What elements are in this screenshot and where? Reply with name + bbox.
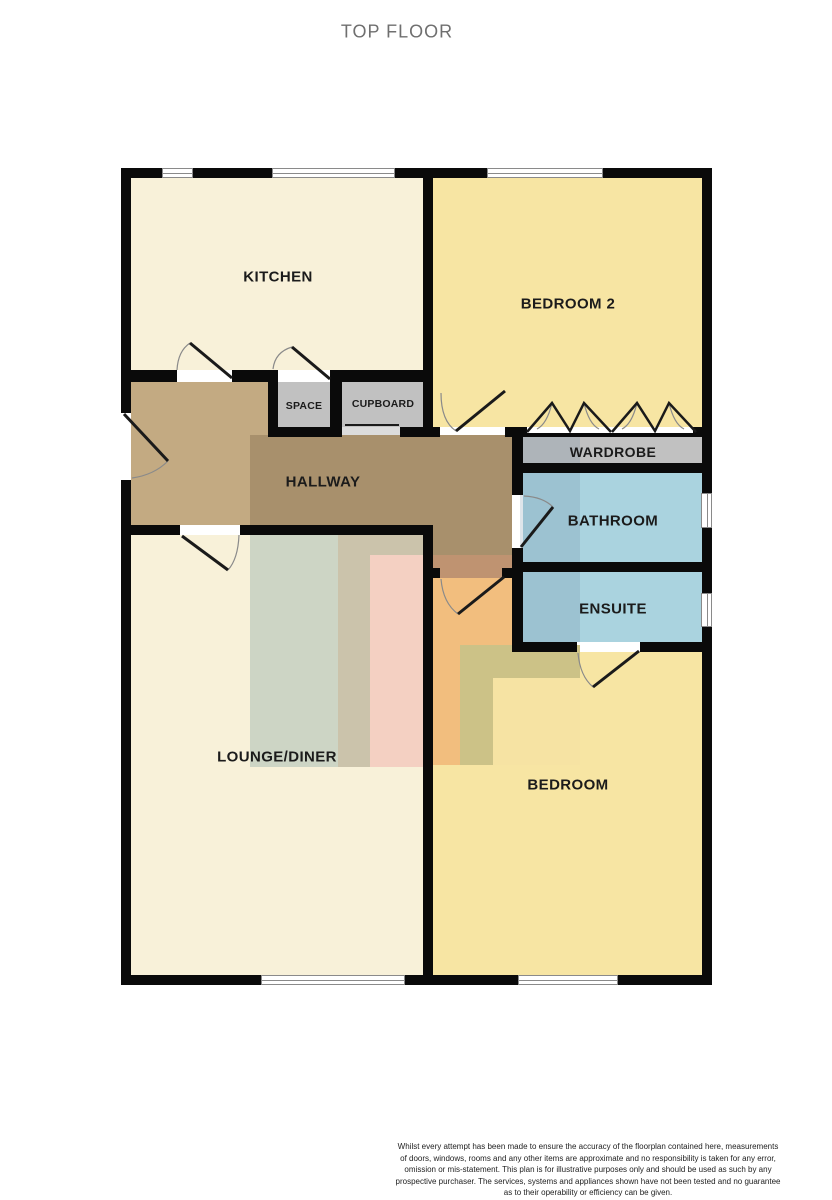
disclaimer-line: of doors, windows, rooms and any other i…: [368, 1153, 808, 1165]
door-leaf: [182, 536, 228, 570]
door-arc: [578, 653, 593, 687]
room-label-bedroom2: BEDROOM 2: [521, 296, 615, 313]
room-label-wardrobe: WARDROBE: [570, 444, 656, 460]
disclaimer-line: Whilst every attempt has been made to en…: [368, 1141, 808, 1153]
door-leaf: [190, 343, 232, 378]
room-label-bathroom: BATHROOM: [568, 513, 658, 530]
disclaimer: Whilst every attempt has been made to en…: [368, 1141, 808, 1200]
door-symbols: [0, 0, 832, 1200]
disclaimer-line: prospective purchaser. The services, sys…: [368, 1176, 808, 1188]
door-arc: [441, 579, 458, 614]
door-arc: [228, 535, 239, 570]
door-arc: [273, 347, 292, 369]
door-leaf: [456, 391, 505, 431]
door-arc: [177, 343, 190, 370]
door-leaf: [292, 347, 330, 379]
room-label-hallway: HALLWAY: [286, 474, 361, 491]
door-leaf: [593, 651, 639, 687]
door-arc: [132, 461, 168, 478]
room-label-cupboard: CUPBOARD: [352, 398, 414, 410]
door-arc: [524, 496, 553, 507]
room-label-lounge-diner: LOUNGE/DINER: [217, 749, 337, 766]
floorplan-page: TOP FLOOR: [0, 0, 832, 1200]
room-label-space: SPACE: [286, 400, 322, 412]
door-leaf: [124, 414, 168, 461]
room-label-ensuite: ENSUITE: [579, 601, 647, 618]
door-arc: [441, 393, 456, 431]
disclaimer-line: omission or mis-statement. This plan is …: [368, 1164, 808, 1176]
room-label-kitchen: KITCHEN: [243, 269, 312, 286]
door-leaf: [521, 507, 553, 547]
door-leaf: [458, 577, 504, 614]
disclaimer-line: as to their operability or efficiency ca…: [368, 1187, 808, 1199]
room-label-bedroom: BEDROOM: [527, 777, 608, 794]
